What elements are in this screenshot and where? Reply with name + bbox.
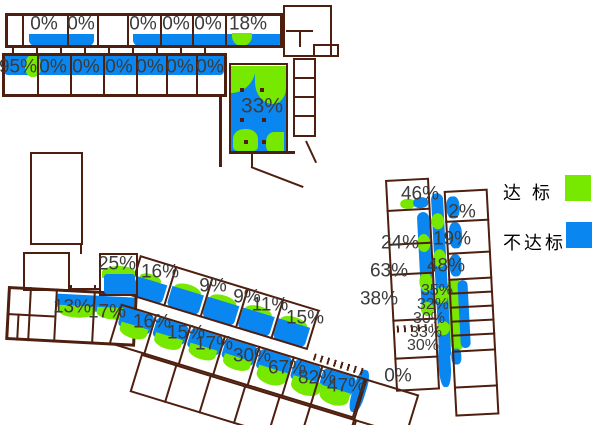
room-percent-label: 0% — [194, 15, 221, 34]
wall-segment — [97, 13, 99, 48]
room-percent-label: 47% — [327, 377, 365, 396]
wall-segment — [80, 245, 82, 254]
wall-segment — [23, 252, 70, 291]
room-percent-label: 0% — [384, 367, 411, 386]
wall-segment — [30, 152, 83, 245]
room-percent-label: 0% — [30, 15, 57, 34]
room-percent-label: 0% — [39, 58, 66, 77]
room-percent-label: 11% — [252, 296, 289, 315]
wall-segment — [22, 13, 24, 48]
wall-segment — [225, 13, 227, 48]
room-percent-label: 2% — [448, 203, 475, 222]
room-percent-label: 9% — [199, 277, 226, 296]
room-percent-label: 46% — [401, 185, 439, 204]
room-percent-label: 24% — [381, 234, 419, 253]
room-percent-label: 19% — [433, 230, 471, 249]
room-percent-label: 30% — [233, 347, 271, 366]
room-percent-label: 16% — [133, 313, 171, 332]
room-percent-label: 48% — [427, 257, 465, 276]
room-percent-label: 16% — [141, 263, 179, 282]
room-percent-label: 17% — [195, 335, 233, 354]
room-percent-label: 0% — [166, 58, 193, 77]
room-percent-label: 33% — [241, 96, 283, 117]
floor-plan: 0%0%0%0%0%18%95%0%0%0%0%0%0%33%25%13%17%… — [0, 0, 600, 425]
wall-segment — [240, 88, 244, 92]
legend-fail-swatch — [566, 222, 592, 248]
wall-segment — [260, 88, 264, 92]
wall-segment — [444, 189, 500, 417]
wall-segment — [299, 30, 301, 47]
room-percent-label: 17% — [88, 303, 126, 322]
room-percent-label: 95% — [0, 58, 37, 77]
room-percent-label: 0% — [162, 15, 189, 34]
legend-pass-swatch — [565, 175, 591, 201]
wall-segment — [229, 151, 295, 154]
room-percent-label: 18% — [229, 15, 267, 34]
room-percent-label: 0% — [129, 15, 156, 34]
room-percent-label: 63% — [370, 262, 408, 281]
room-percent-label: 0% — [196, 58, 223, 77]
wall-segment — [293, 96, 316, 98]
wall-segment — [313, 44, 339, 57]
room-percent-label: 15% — [286, 309, 324, 328]
wall-segment — [244, 140, 248, 144]
wall-segment — [219, 97, 222, 167]
room-percent-label: 0% — [67, 15, 94, 34]
wall-segment — [305, 141, 317, 164]
room-percent-label: 30% — [407, 338, 439, 354]
wall-segment — [251, 166, 304, 188]
room-percent-label: 25% — [98, 255, 136, 274]
wall-segment — [262, 140, 266, 144]
wall-segment — [293, 115, 316, 117]
wall-segment — [70, 285, 100, 290]
room-percent-label: 13% — [53, 298, 91, 317]
wall-segment — [293, 77, 316, 79]
wall-segment — [240, 118, 244, 122]
legend-fail-label: 不达标 — [503, 229, 566, 255]
room-percent-label: 0% — [136, 58, 163, 77]
room-percent-label: 0% — [72, 58, 99, 77]
wall-segment — [12, 48, 207, 53]
legend-pass-label: 达 标 — [503, 179, 553, 205]
room-percent-label: 0% — [105, 58, 132, 77]
wall-segment — [262, 118, 266, 122]
room-percent-label: 38% — [360, 290, 398, 309]
